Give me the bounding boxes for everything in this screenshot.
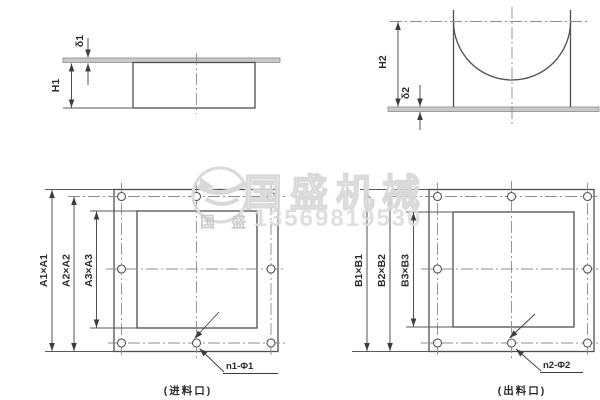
bolt-hole [434,193,442,201]
bolt-hole [267,339,275,347]
a1-dimension-label: A1×A1 [38,254,50,287]
b3-dimension-label: B3×B3 [399,254,411,287]
bolt-hole [193,339,201,347]
side-view-outlet: H2 δ2 [377,7,599,130]
watermark: 国盛机械 13569819530 国 盛 [193,168,428,232]
b1-dimension-label: B1×B1 [353,254,365,287]
bolt-hole [584,339,592,347]
bolt-hole [434,339,442,347]
bolt-hole [434,265,442,273]
inlet-bolt-spec-label: n1-Φ1 [226,361,254,372]
inlet-flange-plate [63,58,280,63]
a3-dimension-label: A3×A3 [83,254,95,287]
watermark-logo-wing [199,177,214,190]
delta2-dimension-label: δ2 [400,87,412,99]
outlet-opening-square [453,212,574,327]
bolt-hole [118,265,126,273]
h2-dimension-label: H2 [377,55,389,69]
b2-dimension-label: B2×B2 [376,254,388,287]
h1-dimension-label: H1 [50,79,62,93]
a2-dimension-label: A2×A2 [60,254,72,287]
bolt-hole [267,265,275,273]
outlet-flange-plate [388,107,599,112]
inlet-caption: (进料口) [164,384,213,397]
delta1-dimension-label: δ1 [74,35,86,47]
bolt-hole [118,193,126,201]
outlet-leader-arrow-lower [516,349,541,371]
outlet-caption: (出料口) [498,384,547,397]
bolt-hole [584,193,592,201]
bolt-hole [508,339,516,347]
inlet-duct-body [133,63,255,109]
bolt-hole [584,265,592,273]
outlet-bolt-spec-label: n2-Φ2 [543,360,570,371]
engineering-drawing-page: H1 δ1 H2 δ2 [0,0,600,400]
watermark-phone-text: 13569819530 [254,205,423,232]
side-view-inlet: H1 δ1 [50,35,280,114]
watermark-logo-swoosh [206,199,238,204]
watermark-brand-small-text: 国 盛 [200,213,252,231]
outlet-leader-arrow-upper [510,314,536,338]
inlet-leader-arrow-upper [195,312,220,339]
bolt-hole [508,193,516,201]
flange-drawing-canvas: H1 δ1 H2 δ2 [0,0,600,400]
bolt-hole [118,339,126,347]
